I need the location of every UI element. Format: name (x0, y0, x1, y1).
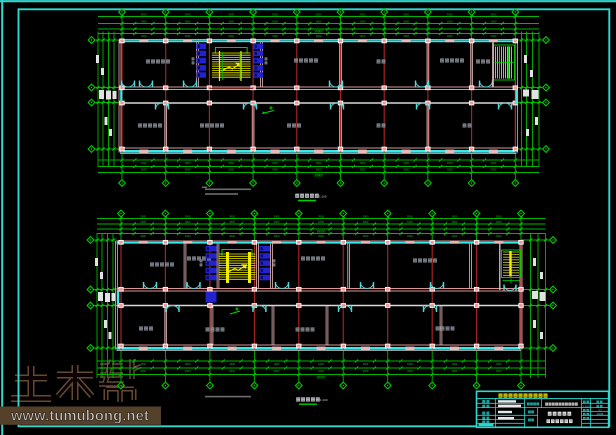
svg-text:1800: 1800 (140, 362, 146, 366)
svg-text:3900: 3900 (185, 234, 191, 238)
svg-text:1:100: 1:100 (582, 404, 590, 408)
svg-text:1800: 1800 (228, 161, 234, 165)
svg-text:1:100: 1:100 (320, 398, 328, 402)
svg-text:1800: 1800 (316, 161, 322, 165)
svg-text:3900: 3900 (140, 234, 146, 238)
svg-text:3900: 3900 (141, 168, 147, 172)
svg-text:1800: 1800 (229, 220, 235, 224)
svg-text:1800: 1800 (318, 220, 324, 224)
svg-text:1800: 1800 (229, 362, 235, 366)
svg-text:3900: 3900 (274, 369, 280, 373)
svg-text:3900: 3900 (447, 12, 453, 16)
svg-text:1800: 1800 (491, 19, 497, 23)
svg-text:39600: 39600 (317, 376, 326, 380)
svg-text:3900: 3900 (496, 214, 502, 218)
svg-text:3900: 3900 (272, 12, 278, 16)
svg-text:3900: 3900 (318, 234, 324, 238)
svg-text:1800: 1800 (447, 161, 453, 165)
svg-text:3900: 3900 (407, 369, 413, 373)
svg-text:39600: 39600 (317, 229, 326, 233)
svg-text:3900: 3900 (316, 168, 322, 172)
svg-text:1800: 1800 (274, 362, 280, 366)
svg-text:3900: 3900 (452, 369, 458, 373)
svg-text:3900: 3900 (316, 12, 322, 16)
svg-text:1800: 1800 (318, 362, 324, 366)
svg-text:1800: 1800 (274, 220, 280, 224)
svg-text:2008: 2008 (597, 412, 604, 416)
svg-text:1800: 1800 (185, 220, 191, 224)
svg-text:3900: 3900 (141, 34, 147, 38)
svg-text:3900: 3900 (403, 168, 409, 172)
svg-text:3900: 3900 (363, 234, 369, 238)
svg-text:3900: 3900 (185, 12, 191, 16)
svg-text:www.tumubong.net: www.tumubong.net (10, 409, 149, 425)
svg-text:3900: 3900 (407, 234, 413, 238)
svg-text:3900: 3900 (185, 168, 191, 172)
svg-text:3900: 3900 (316, 34, 322, 38)
svg-text:3900: 3900 (360, 168, 366, 172)
svg-text:3900: 3900 (274, 214, 280, 218)
svg-text:3900: 3900 (363, 214, 369, 218)
svg-text:39600: 39600 (314, 174, 323, 178)
svg-text:1800: 1800 (407, 362, 413, 366)
svg-text:3900: 3900 (496, 234, 502, 238)
svg-text:1800: 1800 (185, 161, 191, 165)
svg-text:1800: 1800 (140, 220, 146, 224)
svg-text:3900: 3900 (491, 34, 497, 38)
svg-text:1800: 1800 (403, 19, 409, 23)
svg-text:3900: 3900 (274, 234, 280, 238)
svg-text:3900: 3900 (140, 214, 146, 218)
svg-text:3900: 3900 (452, 234, 458, 238)
svg-text:3900: 3900 (228, 168, 234, 172)
svg-text:3900: 3900 (228, 34, 234, 38)
svg-text:1:100: 1:100 (319, 194, 327, 198)
svg-text:1800: 1800 (447, 19, 453, 23)
svg-text:3900: 3900 (451, 214, 457, 218)
svg-text:1800: 1800 (403, 161, 409, 165)
svg-text:3900: 3900 (403, 34, 409, 38)
svg-text:3900: 3900 (229, 234, 235, 238)
svg-text:3900: 3900 (272, 168, 278, 172)
svg-text:3900: 3900 (447, 168, 453, 172)
svg-text:3900: 3900 (491, 168, 497, 172)
svg-text:3900: 3900 (407, 214, 413, 218)
svg-text:3900: 3900 (496, 369, 502, 373)
svg-text:1800: 1800 (363, 220, 369, 224)
svg-text:3900: 3900 (229, 214, 235, 218)
svg-text:1800: 1800 (360, 19, 366, 23)
svg-text:1800: 1800 (496, 362, 502, 366)
svg-text:1800: 1800 (496, 220, 502, 224)
svg-text:3900: 3900 (185, 369, 191, 373)
svg-text:1800: 1800 (228, 19, 234, 23)
svg-text:3900: 3900 (318, 214, 324, 218)
svg-text:1800: 1800 (185, 19, 191, 23)
svg-text:1800: 1800 (185, 362, 191, 366)
svg-text:3900: 3900 (185, 34, 191, 38)
svg-text:1800: 1800 (363, 362, 369, 366)
svg-text:3900: 3900 (363, 369, 369, 373)
svg-text:1800: 1800 (491, 161, 497, 165)
svg-text:1800: 1800 (316, 19, 322, 23)
svg-text:3900: 3900 (447, 34, 453, 38)
svg-text:1800: 1800 (360, 161, 366, 165)
svg-text:1800: 1800 (407, 220, 413, 224)
svg-text:3900: 3900 (318, 369, 324, 373)
svg-text:3900: 3900 (185, 214, 191, 218)
svg-text:3900: 3900 (360, 34, 366, 38)
svg-text:3900: 3900 (228, 12, 234, 16)
svg-text:3900: 3900 (359, 12, 365, 16)
svg-text:1800: 1800 (141, 161, 147, 165)
svg-text:1800: 1800 (452, 362, 458, 366)
svg-text:3900: 3900 (272, 34, 278, 38)
svg-text:3900: 3900 (140, 369, 146, 373)
svg-text:3900: 3900 (229, 369, 235, 373)
svg-text:1800: 1800 (452, 220, 458, 224)
svg-text:39600: 39600 (314, 29, 323, 33)
svg-text:1800: 1800 (272, 161, 278, 165)
svg-text:1800: 1800 (141, 19, 147, 23)
svg-text:3900: 3900 (141, 12, 147, 16)
svg-text:3900: 3900 (490, 12, 496, 16)
svg-text:3900: 3900 (403, 12, 409, 16)
svg-text:1800: 1800 (272, 19, 278, 23)
